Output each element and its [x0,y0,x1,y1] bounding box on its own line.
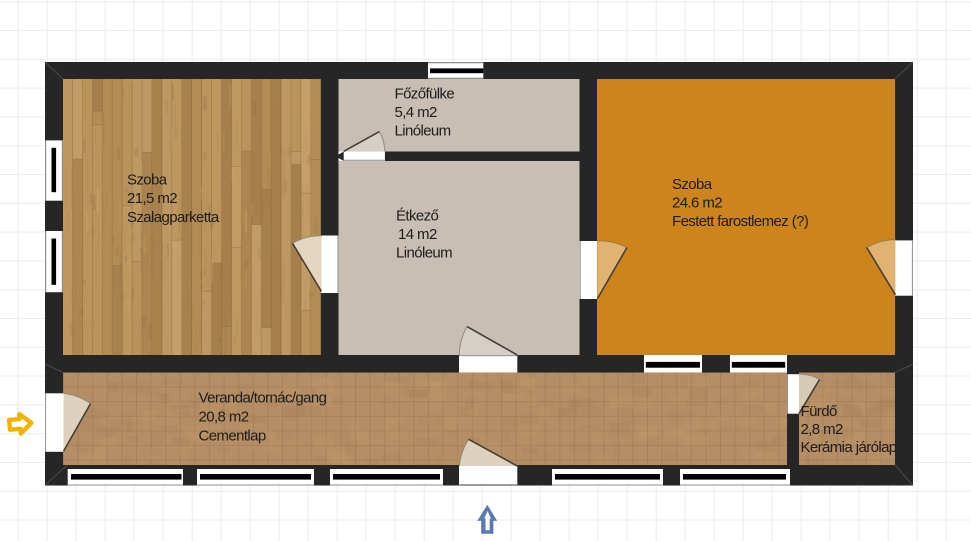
svg-text:Fürdő: Fürdő [801,403,837,420]
svg-text:Főzőfülke: Főzőfülke [395,86,455,103]
svg-text:Kerámia járólap: Kerámia járólap [801,439,897,456]
svg-text:Szoba: Szoba [672,176,713,193]
svg-text:Veranda/tornác/gang: Veranda/tornác/gang [199,390,327,407]
svg-text:Festett farostlemez (?): Festett farostlemez (?) [672,213,809,230]
svg-text:Szoba: Szoba [127,171,168,188]
svg-text:Szalagparketta: Szalagparketta [127,209,220,226]
svg-text:Cementlap: Cementlap [199,427,266,444]
svg-text:14 m2: 14 m2 [398,226,437,243]
svg-text:2,8 m2: 2,8 m2 [801,421,844,438]
svg-text:20,8 m2: 20,8 m2 [199,408,249,425]
svg-text:24.6 m2: 24.6 m2 [672,195,722,212]
svg-text:Linóleum: Linóleum [396,245,452,262]
svg-text:21,5 m2: 21,5 m2 [127,190,177,207]
svg-text:5,4 m2: 5,4 m2 [395,104,438,121]
svg-text:Linóleum: Linóleum [395,123,451,140]
svg-text:Étkező: Étkező [396,208,439,225]
